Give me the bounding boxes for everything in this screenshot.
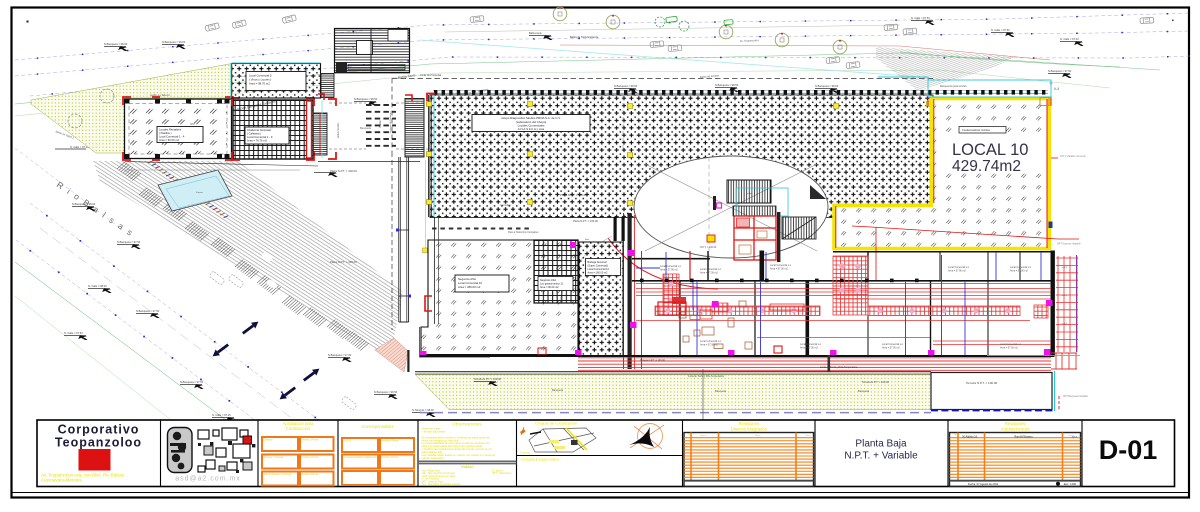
svg-text:Observaciones: Observaciones	[452, 422, 482, 427]
svg-text:N.Banqueta = 97.50: N.Banqueta = 97.50	[180, 380, 204, 384]
svg-text:Revisiones: Revisiones	[1005, 421, 1025, 426]
svg-text:Fecha y Firma: Fecha y Firma	[302, 472, 319, 476]
svg-text:N.Banqueta = 98.50: N.Banqueta = 98.50	[715, 83, 739, 87]
svg-text:N.Banqueta = 98.00: N.Banqueta = 98.00	[815, 84, 839, 88]
svg-text:N.Banqueta = 98.00: N.Banqueta = 98.00	[162, 40, 186, 44]
svg-text:Bahia taxis: Bahia taxis	[529, 31, 542, 35]
svg-text:N.Tianguis = 98.00: N.Tianguis = 98.00	[412, 408, 434, 412]
svg-text:Fecha y Firma: Fecha y Firma	[302, 438, 319, 442]
svg-text:Disenos Integrados: Disenos Integrados	[731, 427, 767, 432]
svg-text:Area = 57.00 m2: Area = 57.00 m2	[700, 343, 718, 346]
svg-text:Plaza N.P.T. = 100.00: Plaza N.P.T. = 100.00	[573, 219, 598, 223]
svg-text:NPT Superior Variable: NPT Superior Variable	[1057, 243, 1081, 246]
svg-text:N. Calle = 97.50: N. Calle = 97.50	[991, 28, 1010, 32]
svg-text:N.Banqueta = 98.00: N.Banqueta = 98.00	[104, 42, 128, 46]
svg-text:Area = 57.00 m2: Area = 57.00 m2	[1010, 269, 1028, 272]
svg-text:Croquis de Localizacion: Croquis de Localizacion	[535, 421, 577, 426]
svg-text:Fecha: Fecha	[700, 435, 707, 437]
svg-text:Fecha: Fecha	[966, 435, 973, 437]
svg-text:Croquis Esquematico: Croquis Esquematico	[521, 457, 560, 462]
svg-text:sube: sube	[747, 193, 753, 195]
svg-text:NPT : Obra Firme: NPT : Obra Firme	[492, 472, 512, 475]
svg-text:Fecha y Firma: Fecha y Firma	[382, 439, 399, 443]
svg-text:Locales Rentables: Locales Rentables	[159, 128, 182, 132]
svg-text:Banqueta: Banqueta	[858, 389, 870, 393]
svg-text:Fecha y Firma: Fecha y Firma	[302, 455, 319, 459]
svg-text:Revisiones: Revisiones	[739, 421, 759, 426]
svg-text:Banqueta: Banqueta	[715, 389, 727, 393]
svg-text:Area = 60.00 m2: Area = 60.00 m2	[159, 138, 179, 142]
svg-text:Esc: 1:200: Esc: 1:200	[1064, 482, 1077, 486]
svg-text:Corporativo: Corporativo	[58, 423, 140, 437]
svg-text:Area = 98.70 m2: Area = 98.70 m2	[249, 82, 270, 86]
svg-text:Local Comercial 1 - 9: Local Comercial 1 - 9	[247, 135, 273, 139]
svg-text:Condensadores Juntitos: Condensadores Juntitos	[962, 128, 991, 132]
svg-text:Cuernavaca Morelos: Cuernavaca Morelos	[41, 478, 82, 483]
svg-text:Paso a Todos Nos Comparten: Paso a Todos Nos Comparten	[508, 231, 539, 234]
svg-text:Proyecto de Gobierno: Proyecto de Gobierno	[389, 111, 392, 133]
svg-text:Construccion: Construccion	[286, 426, 311, 431]
svg-text:Tuberia N.P.T. = 100.00: Tuberia N.P.T. = 100.00	[640, 359, 666, 362]
svg-text:indican adecuados: indican adecuados	[422, 456, 445, 460]
svg-text:Area = 57.00 m2: Area = 57.00 m2	[700, 271, 718, 274]
svg-text:LOCAL 10: LOCAL 10	[952, 141, 1028, 159]
svg-text:Local Comercial 1 - 4: Local Comercial 1 - 4	[159, 135, 185, 139]
svg-text:Fuente: Fuente	[196, 191, 204, 194]
svg-text:Area = 280.00 m2: Area = 280.00 m2	[458, 285, 481, 289]
svg-text:N.Banqueta = 97.50: N.Banqueta = 97.50	[117, 240, 141, 244]
svg-text:Vialidad: Vialidad	[461, 465, 474, 469]
svg-text:Notas: Notas	[1020, 434, 1027, 437]
svg-text:( Cafeteria ): ( Cafeteria )	[247, 132, 261, 136]
svg-text:Bahia de Taxis Existente: Bahia de Taxis Existente	[570, 35, 599, 39]
svg-text:Director: Director	[264, 438, 273, 442]
svg-text:+ se dan aqui antes: + se dan aqui antes	[422, 429, 446, 433]
svg-text:Puente: Puente	[379, 120, 382, 128]
svg-text:Academia Gimnasio: Academia Gimnasio	[247, 128, 272, 132]
svg-text:a 0.9: a 0.9	[1062, 323, 1068, 325]
svg-text:429.74m2: 429.74m2	[952, 158, 1021, 175]
svg-text:Plaza N.P.T. = 100.00: Plaza N.P.T. = 100.00	[330, 260, 357, 264]
svg-text:N.Banqueta = 96.50: N.Banqueta = 96.50	[374, 390, 398, 394]
svg-text:N.P.T. = 100.00: N.P.T. = 100.00	[700, 246, 717, 249]
svg-text:Area = 57.00 m2: Area = 57.00 m2	[800, 346, 818, 349]
svg-text:N.Banqueta = 97.50: N.Banqueta = 97.50	[136, 309, 160, 313]
svg-text:N.Banqueta = 97.00: N.Banqueta = 97.00	[328, 353, 352, 357]
svg-text:N. Calle = 97.50: N. Calle = 97.50	[911, 16, 930, 20]
svg-text:Area = 76.76 m2: Area = 76.76 m2	[247, 139, 267, 143]
svg-text:N.Banqueta = 97.50: N.Banqueta = 97.50	[1048, 69, 1072, 73]
svg-text:Junta de Tierra y Riza Tempera: Junta de Tierra y Riza Temperatura	[820, 366, 858, 369]
svg-text:Area = 57.00 m2: Area = 57.00 m2	[770, 267, 788, 270]
svg-text:( Pasillos ): ( Pasillos )	[159, 131, 172, 135]
svg-text:Fecha: 07 Agosto de 2011: Fecha: 07 Agosto de 2011	[968, 482, 999, 486]
svg-text:Lim: Lim	[436, 94, 440, 96]
svg-text:a 0.9: a 0.9	[1062, 295, 1068, 297]
svg-text:Terraza N.P.T. = 100.00: Terraza N.P.T. = 100.00	[966, 381, 998, 385]
svg-text:NPT Banqueta Variable: NPT Banqueta Variable	[1063, 395, 1089, 398]
svg-text:Admin Superv / Corresp: Admin Superv / Corresp	[264, 472, 292, 476]
svg-text:Planta Baja: Planta Baja	[855, 439, 907, 450]
svg-text:Fecha y Firma: Fecha y Firma	[382, 455, 399, 459]
svg-text:Colonia: Colonia	[520, 451, 530, 455]
svg-text:Firma: Firma	[1068, 434, 1074, 437]
svg-text:Marquesina para sombra: Marquesina para sombra	[940, 85, 967, 88]
svg-text:N. Calle = 97.00: N. Calle = 97.00	[1060, 37, 1079, 41]
svg-text:N.P.T. Variable comercio: N.P.T. Variable comercio	[1060, 155, 1086, 158]
svg-text:asd@a2.com.mx: asd@a2.com.mx	[175, 476, 241, 483]
svg-text:V-4: V-4	[1054, 87, 1059, 91]
svg-text:Limite de Propiedad: Limite de Propiedad	[420, 74, 442, 77]
svg-text:Corresponsable Instalaciones: Corresponsable Instalaciones	[344, 455, 379, 459]
svg-text:N.P.T. + Variable: N.P.T. + Variable	[844, 451, 918, 462]
svg-text:N. Calle = 97.50: N. Calle = 97.50	[64, 331, 83, 335]
svg-text:Banqueta: Banqueta	[360, 126, 372, 130]
svg-text:Teopanzoloo: Teopanzoloo	[55, 436, 142, 450]
svg-text:Firma: Firma	[805, 434, 811, 437]
svg-text:Corresponsables: Corresponsables	[362, 424, 394, 429]
svg-text:A.N.A.S.F.C.A y mas: A.N.A.S.F.C.A y mas	[518, 127, 545, 131]
svg-text:D-01: D-01	[1099, 435, 1158, 465]
svg-text:Terraza N.P.T. = 100.00: Terraza N.P.T. = 100.00	[862, 380, 890, 384]
svg-text:Anden Servicio: Anden Servicio	[337, 122, 340, 138]
svg-text:Area = 57.00 m2: Area = 57.00 m2	[948, 269, 966, 272]
svg-text:N.Banqueta = 98.00: N.Banqueta = 98.00	[72, 202, 96, 206]
svg-text:Revisor / Corresp: Revisor / Corresp	[264, 455, 285, 459]
svg-text:Notas: Notas	[755, 434, 762, 437]
svg-text:Area = 90.00 m2: Area = 90.00 m2	[540, 286, 559, 289]
svg-text:Area = 160.00 m2: Area = 160.00 m2	[588, 272, 609, 275]
svg-text:N.Banqueta = 98.50: N.Banqueta = 98.50	[354, 97, 378, 101]
svg-text:Junta de Tierra y Riza Tempera: Junta de Tierra y Riza Temperatura	[688, 375, 725, 378]
svg-text:N.Banqueta = 98.50: N.Banqueta = 98.50	[614, 84, 638, 88]
svg-text:Area = 57.00 m2: Area = 57.00 m2	[1000, 346, 1018, 349]
svg-text:N. Calle = 97.25: N. Calle = 97.25	[212, 413, 231, 417]
svg-text:Arquitectonicas: Arquitectonicas	[1001, 427, 1030, 432]
svg-text:Terraza N.P.T. = 100.00: Terraza N.P.T. = 100.00	[474, 377, 502, 381]
svg-text:Banqueta: Banqueta	[552, 388, 564, 392]
svg-text:Area = 57.00 m2: Area = 57.00 m2	[882, 346, 900, 349]
svg-text:Terr : Nivel Piso Terminado ex: Terr : Nivel Piso Terminado exterior	[422, 483, 461, 486]
svg-text:N. Calle = 98.00: N. Calle = 98.00	[88, 284, 107, 288]
svg-text:D.R.O: D.R.O	[344, 439, 351, 443]
svg-text:a 0.9: a 0.9	[1062, 267, 1068, 269]
svg-text:Area = 57.00 m2: Area = 57.00 m2	[660, 268, 678, 271]
